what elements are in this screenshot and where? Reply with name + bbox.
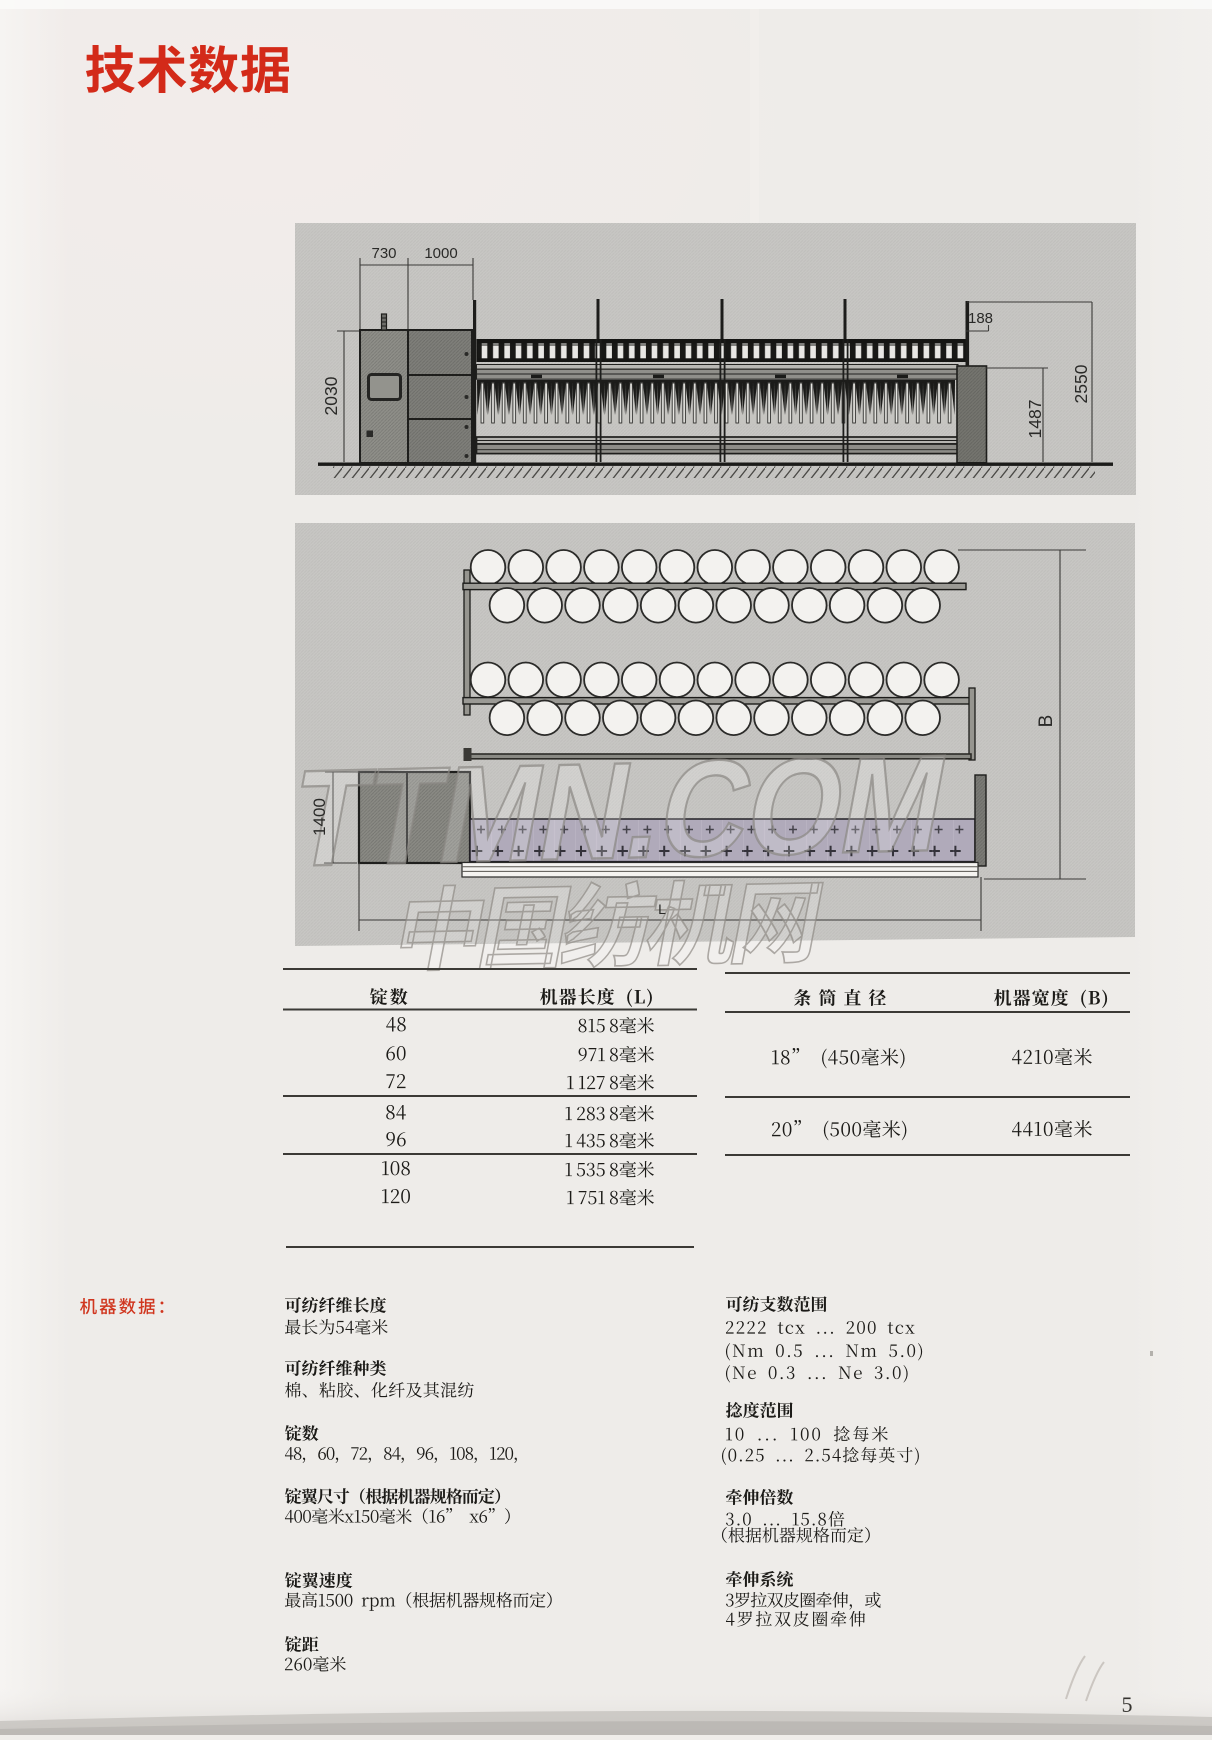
svg-text:1487: 1487 <box>1025 400 1045 439</box>
svg-text:2030: 2030 <box>321 376 341 415</box>
svg-text:B: B <box>1036 715 1057 728</box>
svg-text:1400: 1400 <box>310 798 329 836</box>
svg-text:TTMN.COM: TTMN.COM <box>280 726 958 896</box>
svg-text:1000: 1000 <box>424 245 457 262</box>
svg-text:L: L <box>658 901 666 917</box>
svg-text:730: 730 <box>371 245 396 262</box>
svg-text:5: 5 <box>1122 1692 1133 1717</box>
svg-text:188: 188 <box>968 310 993 327</box>
svg-text:2550: 2550 <box>1071 364 1091 403</box>
